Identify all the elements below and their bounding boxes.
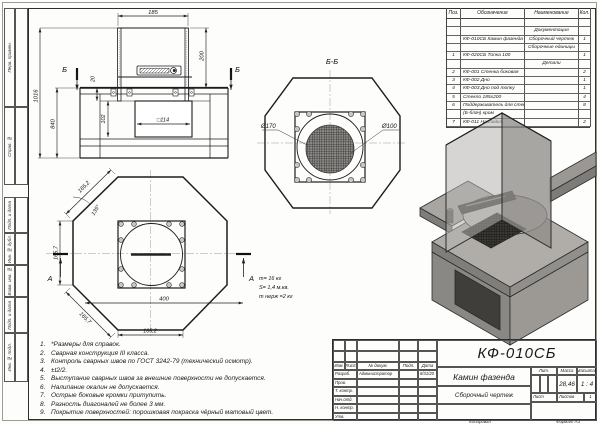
technical-notes: 1.*Размеры для справок. 2.Сварная констр… bbox=[38, 341, 338, 418]
col-header-kol: Кол. bbox=[579, 8, 591, 19]
note-number: 5. bbox=[38, 375, 51, 384]
frame-cell-empty bbox=[15, 297, 28, 333]
frame-cell-empty bbox=[15, 197, 28, 233]
cell-oboz bbox=[461, 27, 525, 35]
note-number: 2. bbox=[38, 350, 51, 359]
mass-line-3: m нерж =2 кг bbox=[259, 294, 293, 300]
cell-poz: 2 bbox=[447, 69, 461, 77]
cell-qty: 1 bbox=[579, 52, 591, 60]
dim-edge-bl: 165,7 bbox=[78, 311, 93, 326]
cell-qty bbox=[579, 60, 591, 68]
product-name: Камин фазенда bbox=[437, 367, 531, 386]
parts-table-header: Поз. Обозначение Наименование Кол. bbox=[447, 8, 590, 19]
angle-label: 135° bbox=[91, 203, 102, 216]
staff-role: Пров. bbox=[333, 379, 357, 388]
staff-role: Т. контр. bbox=[333, 387, 357, 396]
table-row bbox=[447, 19, 590, 27]
frame-cell-empty bbox=[15, 265, 28, 297]
note-text: ±t2/2. bbox=[51, 367, 338, 376]
table-row: 2КФ-001 Стенка боковая2 bbox=[447, 69, 590, 77]
section-title: Б-Б bbox=[326, 57, 338, 66]
cell-name bbox=[525, 94, 579, 102]
note-number: 6. bbox=[38, 384, 51, 393]
cell-oboz: КФ-010СБ Камин фазенда bbox=[461, 36, 525, 44]
note-text: Острые боковые кромки притупить. bbox=[51, 392, 338, 401]
frame-label: Инв. № дубл. bbox=[7, 235, 12, 263]
note-number: 4. bbox=[38, 367, 51, 376]
frame-cell-empty bbox=[15, 107, 28, 185]
cell-poz bbox=[447, 36, 461, 44]
header-docnum: № докум. bbox=[357, 362, 399, 370]
cell-name: Детали bbox=[525, 60, 579, 68]
cell-oboz bbox=[461, 19, 525, 27]
table-row: Документация bbox=[447, 27, 590, 35]
frame-cell-vzam-inv: Взам. инв. № bbox=[4, 265, 15, 297]
frame-cell-perv-primen: Перв. примен. bbox=[4, 8, 15, 107]
note-number: 1. bbox=[38, 341, 51, 350]
cell-poz: 5 bbox=[447, 94, 461, 102]
note-text: *Размеры для справок. bbox=[51, 341, 338, 350]
staff-role: Н. контр. bbox=[333, 404, 357, 413]
mass-line-2: S= 1,4 м.кв. bbox=[259, 285, 289, 291]
cell-qty: 4 bbox=[579, 94, 591, 102]
cell-qty: 1 bbox=[579, 85, 591, 93]
col-header-oboznachenie: Обозначение bbox=[461, 8, 525, 19]
document-type: Сборочный чертеж bbox=[437, 386, 531, 404]
cell-poz: 3 bbox=[447, 77, 461, 85]
orthographic-views: 185 200 1016 840 20 102 □114 Б Б Б-Б bbox=[28, 8, 440, 340]
note-item: 6.Налипание окалин не допускается. bbox=[38, 384, 338, 393]
title-block: Изм. Лист № докум. Подп. Дата Разраб. Ад… bbox=[332, 339, 596, 420]
scale-value: 1 : 4 bbox=[577, 375, 597, 393]
frame-cell-inv-podl: Инв. № подл. bbox=[4, 333, 15, 382]
table-row: КФ-010СБ Камин фазендаСборочный чертеж1 bbox=[447, 36, 590, 44]
table-row: 3КФ-002 Дно1 bbox=[447, 77, 590, 85]
note-text: Покрытие поверхностей: порошковая покрас… bbox=[51, 409, 338, 418]
frame-label: Перв. примен. bbox=[7, 42, 12, 73]
staff-role: Разраб. bbox=[333, 370, 357, 379]
staff-name: Администратор bbox=[357, 370, 399, 379]
staff-date: 8/31/20 bbox=[418, 370, 437, 379]
cell-name: Сборочные единицы bbox=[525, 44, 579, 52]
table-row: 5Стекло 185х2004 bbox=[447, 94, 590, 102]
dim-left: 165,7 bbox=[54, 245, 60, 260]
note-item: 5.Выступание сварных швов за внешние пов… bbox=[38, 375, 338, 384]
note-number: 3. bbox=[38, 358, 51, 367]
note-item: 8.Разность диагоналей не более 3 мм. bbox=[38, 401, 338, 410]
cell-oboz bbox=[461, 44, 525, 52]
note-item: 3.Контроль сварных швов по ГОСТ 3242-79 … bbox=[38, 358, 338, 367]
frame-cell-empty bbox=[15, 233, 28, 265]
cell-oboz bbox=[461, 60, 525, 68]
dim-label-840: 840 bbox=[51, 118, 57, 128]
frame-cell-empty bbox=[15, 8, 28, 107]
dim-label-102: 102 bbox=[101, 115, 107, 124]
staff-role: Утв. bbox=[333, 413, 357, 422]
table-row: 4КФ-003 Дно под топку1 bbox=[447, 85, 590, 93]
note-text: Разность диагоналей не более 3 мм. bbox=[51, 401, 338, 410]
staff-role: Нач.отд. bbox=[333, 396, 357, 405]
header-sign: Подп. bbox=[399, 362, 418, 370]
scale-label: Масштаб bbox=[577, 367, 597, 375]
cell-name bbox=[525, 85, 579, 93]
cell-poz bbox=[447, 27, 461, 35]
cell-qty bbox=[579, 27, 591, 35]
sheets-value: 1 bbox=[584, 393, 597, 402]
dim-width-400: 400 bbox=[159, 297, 169, 303]
sheets-label: Листов bbox=[557, 393, 584, 402]
dia-170-label: Ø170 bbox=[260, 124, 276, 130]
header-date: Дата bbox=[418, 362, 437, 370]
frame-label: Подп. и дата bbox=[7, 201, 12, 230]
mass-line-1: m= 16 кг bbox=[259, 276, 282, 282]
section-mark-b-left: Б bbox=[62, 65, 67, 74]
note-number: 8. bbox=[38, 401, 51, 410]
dim-label-20: 20 bbox=[91, 76, 97, 83]
drawing-sheet: Перв. примен. Справ. № Подп. и дата Инв.… bbox=[0, 0, 600, 424]
document-number: КФ-010СБ bbox=[437, 340, 597, 367]
frame-cell-sprav-no: Справ. № bbox=[4, 107, 15, 185]
note-text: Контроль сварных швов по ГОСТ 3242-79 (т… bbox=[51, 358, 338, 367]
section-mark-a-right: А bbox=[248, 274, 254, 283]
dia-100-label: Ø100 bbox=[381, 124, 397, 130]
header-list: Лист bbox=[345, 362, 357, 370]
isometric-render bbox=[420, 113, 596, 345]
cell-poz bbox=[447, 60, 461, 68]
cell-poz: 1 bbox=[447, 52, 461, 60]
cell-qty: 2 bbox=[579, 69, 591, 77]
frame-cell-inv-dubl: Инв. № дубл. bbox=[4, 233, 15, 265]
section-bb-view: Б-Б Ø170 Ø100 bbox=[257, 57, 406, 214]
copied-label: Копировал bbox=[440, 419, 520, 424]
lit-label: Лит. bbox=[531, 367, 557, 375]
section-mark-b-right: Б bbox=[235, 65, 240, 74]
cell-poz: 4 bbox=[447, 85, 461, 93]
cell-oboz: КФ-020СБ Топка 100 bbox=[461, 52, 525, 60]
frame-cell-empty bbox=[15, 333, 28, 382]
cell-name bbox=[525, 52, 579, 60]
cell-name bbox=[525, 77, 579, 85]
dim-label-sq114: □114 bbox=[157, 118, 169, 124]
note-number: 9. bbox=[38, 409, 51, 418]
dim-bottom: 165,2 bbox=[143, 329, 157, 335]
frame-cell-podp-data-2: Подп. и дата bbox=[4, 297, 15, 333]
isometric-view bbox=[418, 105, 598, 347]
note-text: Выступание сварных швов за внешние повер… bbox=[51, 375, 338, 384]
cell-name bbox=[525, 19, 579, 27]
note-item: 2.Сварная конструкция III класса. bbox=[38, 350, 338, 359]
note-item: 7.Острые боковые кромки притупить. bbox=[38, 392, 338, 401]
dim-label-1016: 1016 bbox=[34, 89, 40, 103]
cell-name: Сборочный чертеж bbox=[525, 36, 579, 44]
note-item: 1.*Размеры для справок. bbox=[38, 341, 338, 350]
cell-qty: 1 bbox=[579, 36, 591, 44]
mass-label: Масса bbox=[557, 367, 577, 375]
note-text: Сварная конструкция III класса. bbox=[51, 350, 338, 359]
col-header-poz: Поз. bbox=[447, 8, 461, 19]
col-header-naimenovanie: Наименование bbox=[525, 8, 579, 19]
cell-oboz: КФ-001 Стенка боковая bbox=[461, 69, 525, 77]
sheet-label: Лист bbox=[531, 393, 557, 402]
frame-label: Инв. № подл. bbox=[7, 343, 12, 372]
dim-label-200: 200 bbox=[200, 50, 206, 61]
note-item: 4.±t2/2. bbox=[38, 367, 338, 376]
frame-label: Подп. и дата bbox=[7, 301, 12, 330]
cell-qty: 1 bbox=[579, 77, 591, 85]
format-label: Формат А3 bbox=[540, 419, 596, 424]
cell-oboz: Стекло 185х200 bbox=[461, 94, 525, 102]
mass-value: 28,46 bbox=[557, 375, 577, 393]
table-row: 1КФ-020СБ Топка 1001 bbox=[447, 52, 590, 60]
dim-edge-tl: 165,2 bbox=[77, 180, 92, 195]
cell-poz bbox=[447, 44, 461, 52]
cell-oboz: КФ-002 Дно bbox=[461, 77, 525, 85]
table-row: Детали bbox=[447, 60, 590, 68]
cell-qty bbox=[579, 19, 591, 27]
cell-oboz: КФ-003 Дно под топку bbox=[461, 85, 525, 93]
header-izm: Изм. bbox=[333, 362, 345, 370]
note-item: 9.Покрытие поверхностей: порошковая покр… bbox=[38, 409, 338, 418]
cell-poz bbox=[447, 19, 461, 27]
dim-label-185: 185 bbox=[148, 10, 158, 16]
frame-cell-podp-data-1: Подп. и дата bbox=[4, 197, 15, 233]
frame-label: Взам. инв. № bbox=[7, 267, 12, 295]
frame-label: Справ. № bbox=[7, 136, 12, 157]
top-view: 165,2 135° 165,7 165,7 400 165,2 А А m= … bbox=[46, 168, 293, 339]
cell-qty bbox=[579, 44, 591, 52]
note-text: Налипание окалин не допускается. bbox=[51, 384, 338, 393]
table-row: Сборочные единицы bbox=[447, 44, 590, 52]
section-mark-a-left: А bbox=[46, 274, 52, 283]
cell-name: Документация bbox=[525, 27, 579, 35]
cell-name bbox=[525, 69, 579, 77]
note-number: 7. bbox=[38, 392, 51, 401]
